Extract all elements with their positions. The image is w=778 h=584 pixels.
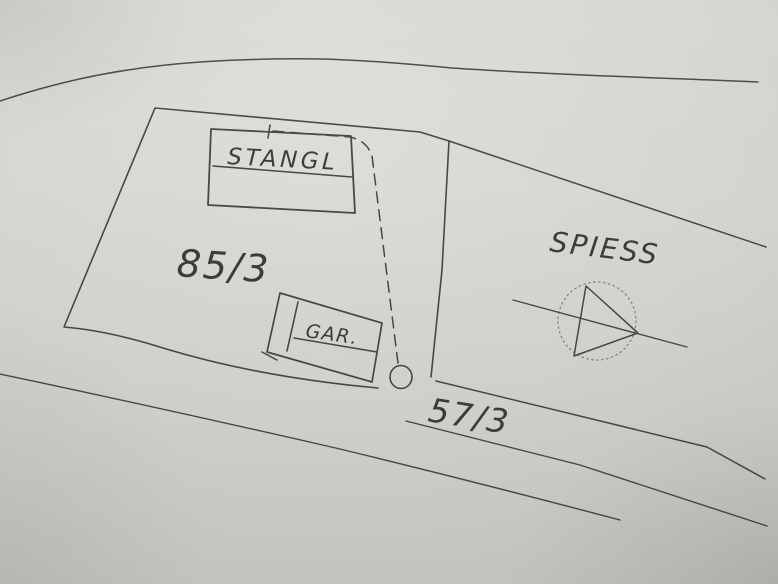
site-plan-drawing: STANGL 85/3 GAR. SPIESS 57/3 <box>0 0 778 584</box>
measurement-tick <box>268 125 270 138</box>
triangulation-point-icon <box>513 282 687 360</box>
boundary-marker-circle <box>390 366 412 389</box>
label-garage: GAR. <box>304 320 360 349</box>
building-garage-divider-vertical <box>287 302 298 351</box>
label-owner-spiess: SPIESS <box>548 225 661 271</box>
road-edge-middle <box>406 421 767 526</box>
trig-through-line <box>513 300 687 347</box>
label-parcel-57-3: 57/3 <box>426 390 513 441</box>
sketch-photo: STANGL 85/3 GAR. SPIESS 57/3 <box>0 0 778 584</box>
parcel-divider-line <box>431 141 449 377</box>
road-edge-left <box>0 374 620 520</box>
top-road-curve <box>0 59 758 101</box>
label-building-stangl: STANGL <box>227 144 339 176</box>
label-parcel-85-3: 85/3 <box>175 241 271 291</box>
trig-triangle <box>574 286 638 356</box>
